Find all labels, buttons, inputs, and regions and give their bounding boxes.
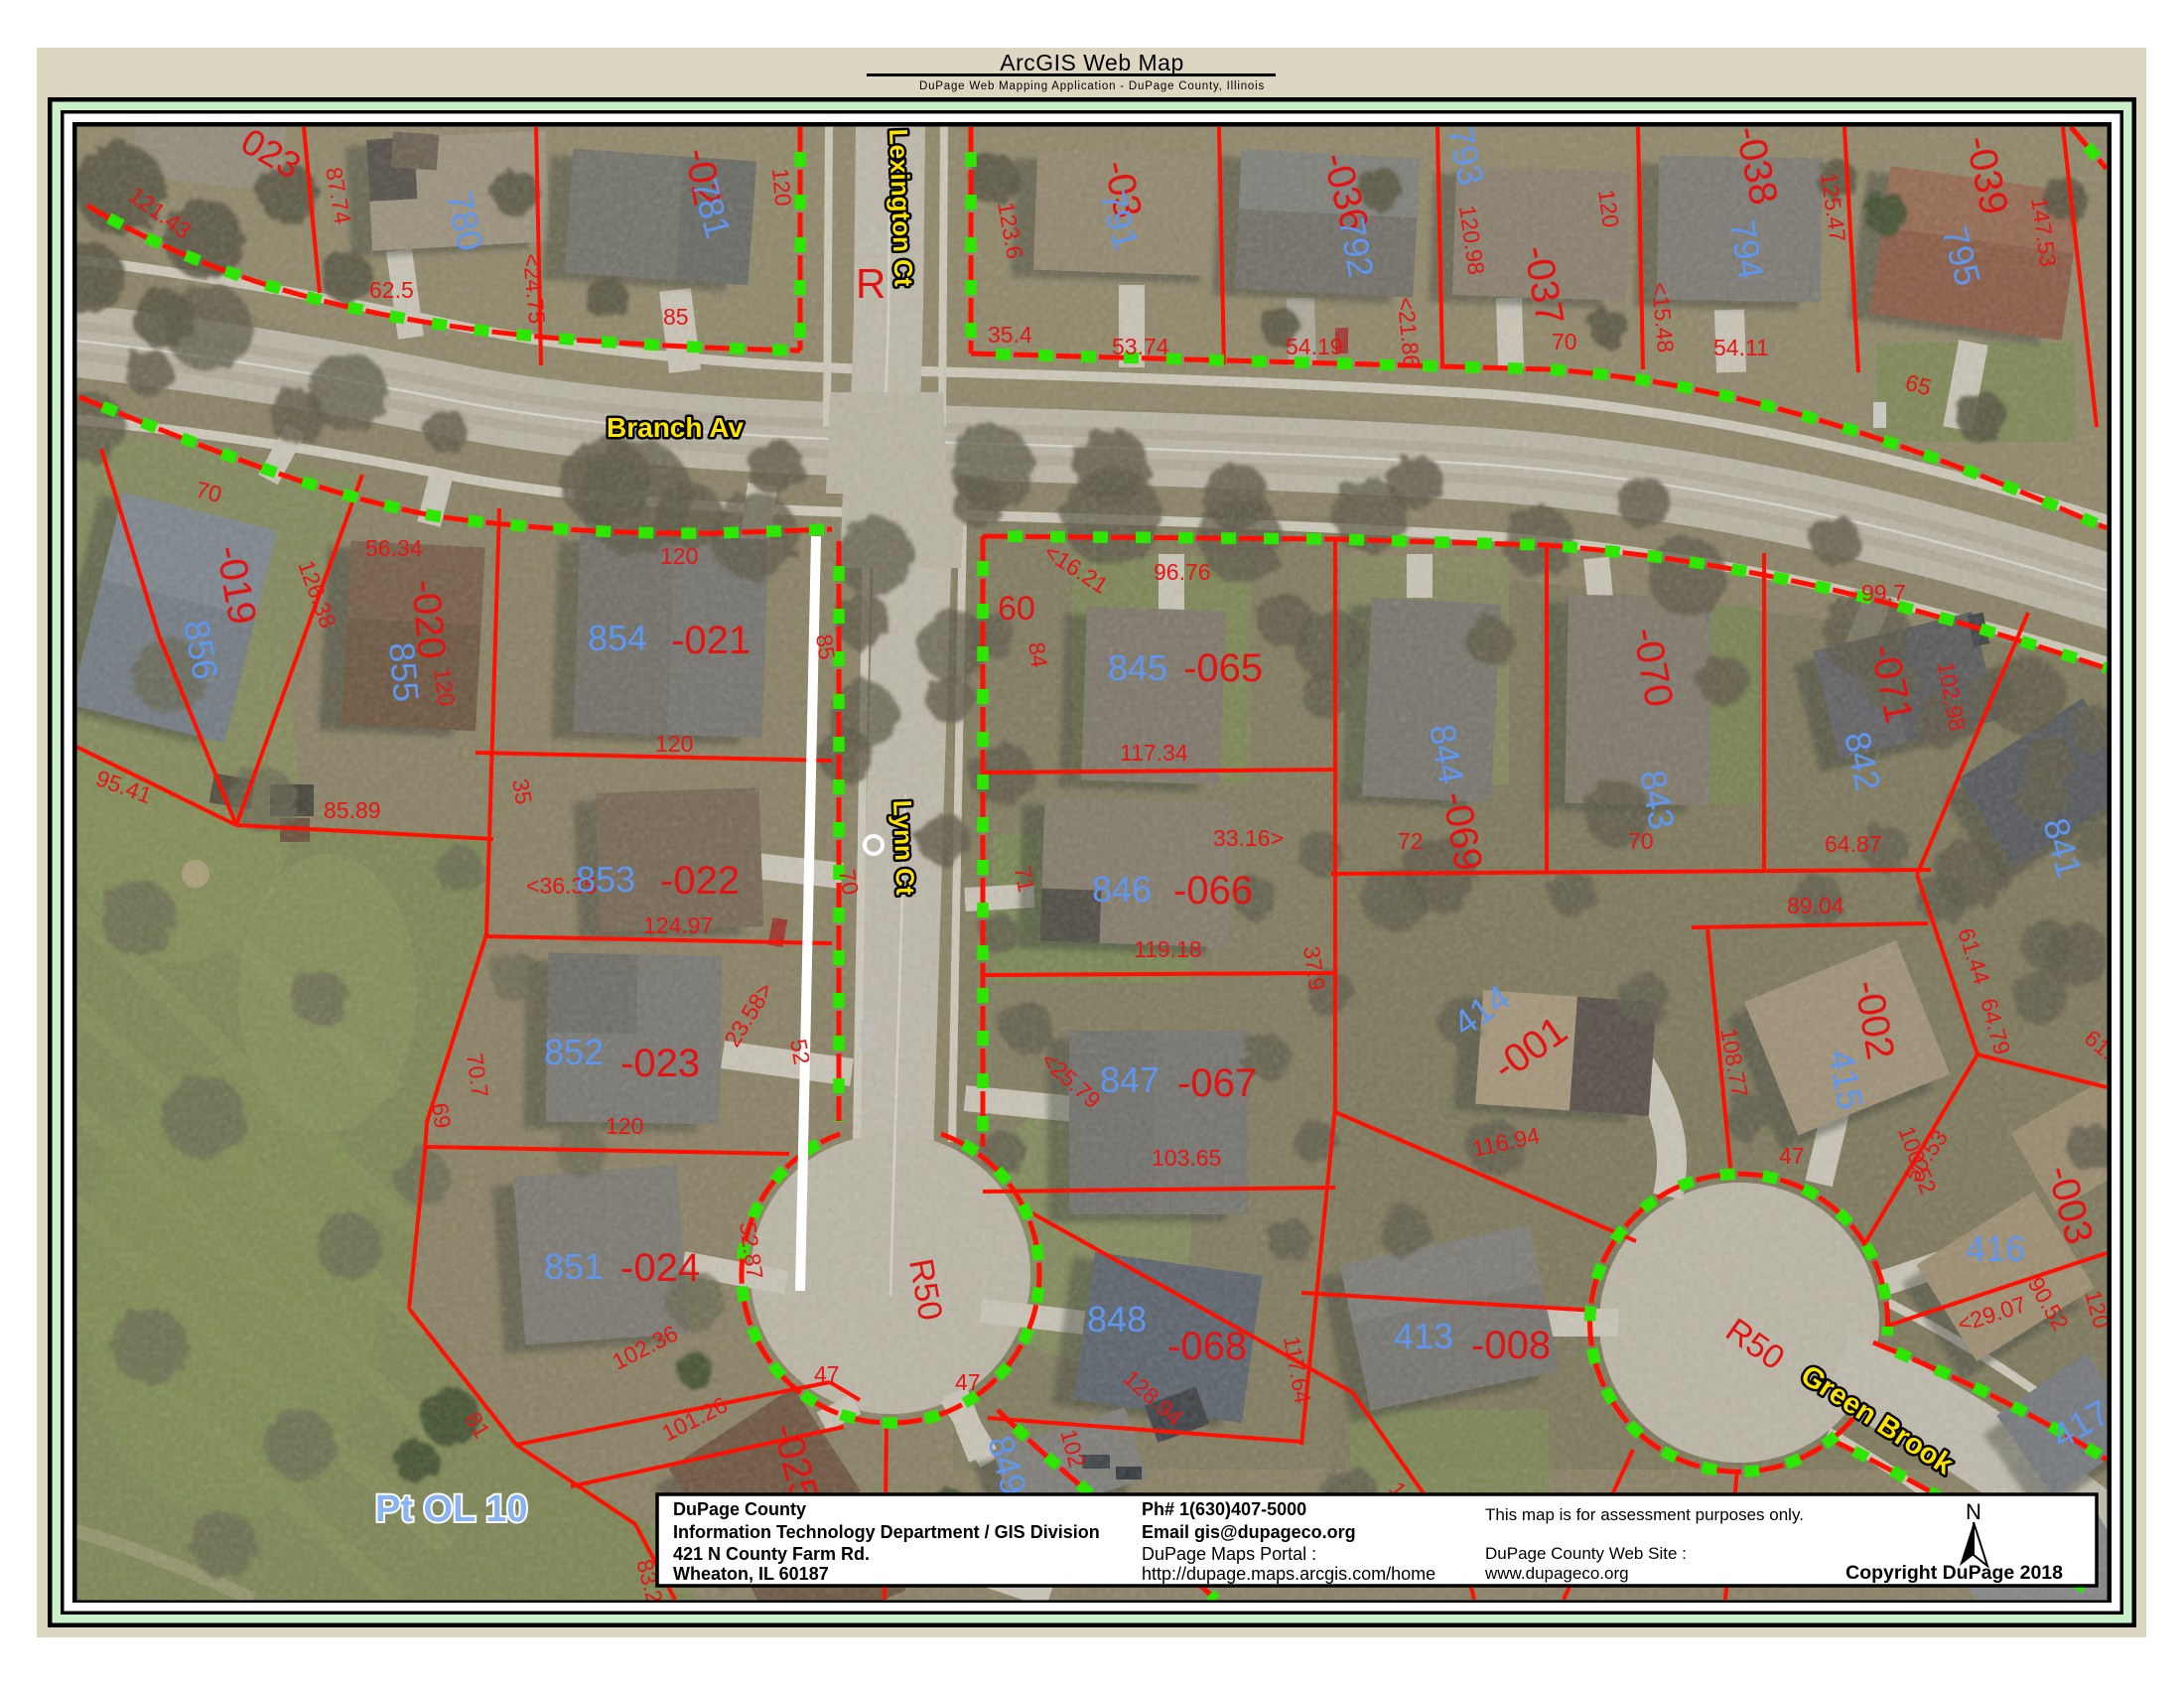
svg-text:Email gis@dupageco.org: Email gis@dupageco.org: [1142, 1522, 1356, 1542]
svg-text:120: 120: [660, 543, 698, 569]
svg-text:DuPage Web Mapping Application: DuPage Web Mapping Application - DuPage …: [919, 80, 1265, 92]
svg-text:845: 845: [1108, 647, 1167, 688]
svg-text:848: 848: [1087, 1299, 1147, 1339]
svg-text:Copyright DuPage 2018: Copyright DuPage 2018: [1845, 1562, 2063, 1584]
svg-text:852: 852: [544, 1032, 604, 1072]
svg-text:124.97: 124.97: [643, 913, 713, 938]
svg-text:-067: -067: [1177, 1061, 1257, 1105]
svg-text:85: 85: [811, 633, 840, 661]
svg-text:120: 120: [1593, 188, 1624, 229]
svg-text:47: 47: [814, 1361, 840, 1387]
svg-text:62.5: 62.5: [369, 277, 414, 303]
svg-text:70: 70: [834, 867, 864, 897]
svg-text:DuPage Maps Portal :: DuPage Maps Portal :: [1142, 1544, 1316, 1564]
svg-text:http://dupage.maps.arcgis.com/: http://dupage.maps.arcgis.com/home: [1142, 1564, 1435, 1584]
svg-text:53.74: 53.74: [1112, 334, 1169, 359]
svg-text:ArcGIS Web Map: ArcGIS Web Map: [1000, 50, 1184, 75]
svg-text:855: 855: [381, 640, 427, 703]
svg-text:DuPage County Web Site :: DuPage County Web Site :: [1485, 1544, 1687, 1563]
svg-text:69: 69: [427, 1101, 456, 1130]
svg-text:R: R: [856, 260, 886, 307]
svg-text:-021: -021: [671, 619, 751, 662]
svg-text:Lynn Ct: Lynn Ct: [887, 799, 920, 896]
svg-text:60: 60: [998, 590, 1035, 628]
svg-text:Wheaton, IL 60187: Wheaton, IL 60187: [673, 1564, 829, 1584]
svg-text:-068: -068: [1167, 1325, 1247, 1368]
svg-text:Information Technology Departm: Information Technology Department / GIS …: [673, 1522, 1100, 1542]
svg-text:DuPage County: DuPage County: [673, 1499, 806, 1519]
svg-text:853: 853: [576, 859, 635, 900]
svg-text:89.04: 89.04: [1787, 893, 1844, 918]
svg-text:421 N County Farm Rd.: 421 N County Farm Rd.: [673, 1544, 870, 1564]
svg-text:96.76: 96.76: [1154, 559, 1211, 585]
svg-text:52: 52: [785, 1037, 815, 1066]
svg-text:Ph# 1(630)407-5000: Ph# 1(630)407-5000: [1142, 1499, 1306, 1519]
svg-text:64.87: 64.87: [1825, 831, 1882, 857]
svg-text:120: 120: [655, 731, 693, 757]
svg-text:847: 847: [1100, 1059, 1160, 1100]
svg-text:416: 416: [1966, 1228, 2025, 1269]
svg-text:-066: -066: [1173, 869, 1253, 913]
svg-text:Pt OL 10: Pt OL 10: [375, 1488, 527, 1530]
svg-text:85: 85: [663, 304, 689, 330]
svg-text:120: 120: [767, 167, 796, 207]
svg-text:854: 854: [588, 618, 647, 658]
svg-text:71: 71: [1010, 864, 1039, 894]
svg-text:-024: -024: [620, 1246, 700, 1290]
svg-text:103.65: 103.65: [1152, 1145, 1221, 1171]
svg-text:120: 120: [606, 1113, 643, 1139]
svg-text:-008: -008: [1471, 1324, 1551, 1367]
svg-text:851: 851: [544, 1246, 604, 1287]
svg-text:119.18: 119.18: [1134, 936, 1202, 962]
svg-text:70: 70: [1628, 828, 1654, 854]
svg-text:-022: -022: [660, 859, 740, 903]
svg-text:56.34: 56.34: [365, 535, 423, 561]
svg-text:This map is for assessment pur: This map is for assessment purposes only…: [1485, 1505, 1804, 1524]
svg-text:35.4: 35.4: [988, 322, 1032, 348]
svg-text:Lexington Ct: Lexington Ct: [884, 128, 919, 287]
svg-text:413: 413: [1394, 1316, 1453, 1356]
svg-text:Branch Av: Branch Av: [607, 412, 744, 443]
svg-text:846: 846: [1092, 869, 1152, 910]
svg-text:-065: -065: [1183, 646, 1263, 690]
svg-text:47: 47: [1779, 1143, 1805, 1169]
svg-text:120: 120: [429, 666, 460, 708]
svg-text:35: 35: [507, 776, 537, 806]
svg-text:84: 84: [1024, 640, 1052, 669]
svg-text:54.19: 54.19: [1286, 334, 1343, 359]
svg-text:72: 72: [1398, 828, 1424, 854]
svg-text:117.34: 117.34: [1120, 740, 1188, 766]
svg-text:N: N: [1966, 1499, 1981, 1524]
svg-text:47: 47: [955, 1369, 981, 1395]
svg-text:54.11: 54.11: [1713, 335, 1769, 360]
svg-text:-023: -023: [620, 1042, 700, 1085]
svg-text:70: 70: [1552, 329, 1577, 354]
svg-text:85.89: 85.89: [324, 797, 381, 823]
svg-text:33.16>: 33.16>: [1213, 825, 1284, 851]
svg-text:www.dupageco.org: www.dupageco.org: [1484, 1564, 1629, 1583]
svg-text:99.7: 99.7: [1861, 580, 1906, 606]
